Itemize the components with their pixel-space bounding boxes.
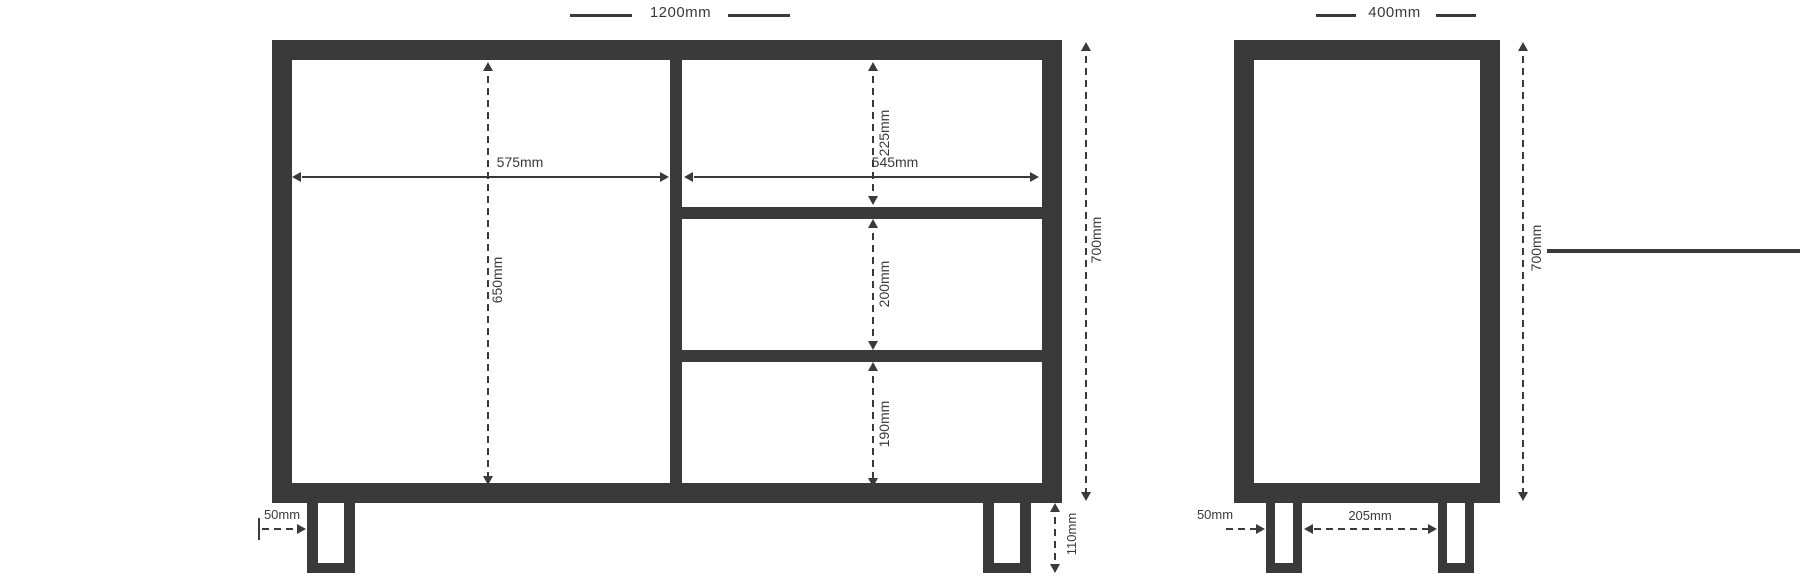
arrowhead-right-icon bbox=[1030, 172, 1039, 182]
dimension-line bbox=[1436, 14, 1476, 17]
dimension-line bbox=[262, 528, 298, 530]
arrowhead-left-icon bbox=[684, 172, 693, 182]
drawer-width-label: 545mm bbox=[830, 152, 960, 172]
front-shelf-divider-2 bbox=[682, 350, 1042, 362]
front-leg-inset-label: 50mm bbox=[242, 505, 322, 525]
overall-width-label: 1200mm bbox=[608, 3, 753, 23]
dimension-line bbox=[1054, 505, 1056, 571]
arrowhead-down-icon bbox=[483, 476, 493, 485]
dimension-line bbox=[728, 14, 790, 17]
arrowhead-up-icon bbox=[1050, 503, 1060, 512]
dimension-line bbox=[1226, 528, 1256, 530]
drawer-1-height-label: 225mm bbox=[874, 73, 894, 193]
front-height-label: 700mm bbox=[1086, 180, 1106, 300]
arrowhead-left-icon bbox=[292, 172, 301, 182]
arrowhead-down-icon bbox=[1050, 564, 1060, 573]
arrowhead-up-icon bbox=[1081, 42, 1091, 51]
dimension-line bbox=[1522, 44, 1524, 499]
side-front-leg bbox=[1266, 503, 1302, 573]
depth-label: 400mm bbox=[1322, 3, 1467, 23]
dimension-tick bbox=[258, 518, 260, 540]
arrowhead-down-icon bbox=[868, 196, 878, 205]
arrowhead-down-icon bbox=[1081, 492, 1091, 501]
drawer-3-height-label: 190mm bbox=[874, 364, 894, 484]
arrowhead-right-icon bbox=[297, 524, 306, 534]
height-leader-line bbox=[1547, 249, 1800, 253]
front-right-leg bbox=[983, 503, 1031, 573]
side-cabinet-outline bbox=[1234, 40, 1500, 503]
leg-spacing-label: 205mm bbox=[1310, 506, 1430, 526]
furniture-dimension-drawing: 1200mm 575mm 545mm 700mm bbox=[0, 0, 1800, 580]
side-rear-leg bbox=[1438, 503, 1474, 573]
arrowhead-down-icon bbox=[1518, 492, 1528, 501]
door-width-label: 575mm bbox=[455, 152, 585, 172]
drawer-2-height-label: 200mm bbox=[874, 224, 894, 344]
dimension-line bbox=[694, 176, 1030, 178]
dimension-line bbox=[302, 176, 660, 178]
arrowhead-up-icon bbox=[868, 62, 878, 71]
arrowhead-up-icon bbox=[1518, 42, 1528, 51]
door-height-label: 650mm bbox=[487, 220, 507, 340]
arrowhead-right-icon bbox=[1256, 524, 1265, 534]
front-cabinet-outline bbox=[272, 40, 1062, 503]
front-shelf-divider-1 bbox=[682, 207, 1042, 219]
side-height-label: 700mm bbox=[1526, 188, 1546, 308]
arrowhead-right-icon bbox=[660, 172, 669, 182]
side-leg-inset-label: 50mm bbox=[1180, 505, 1250, 525]
leg-height-label: 110mm bbox=[1062, 474, 1082, 580]
front-vertical-divider bbox=[670, 60, 682, 487]
arrowhead-up-icon bbox=[483, 62, 493, 71]
dimension-line bbox=[1314, 528, 1432, 530]
